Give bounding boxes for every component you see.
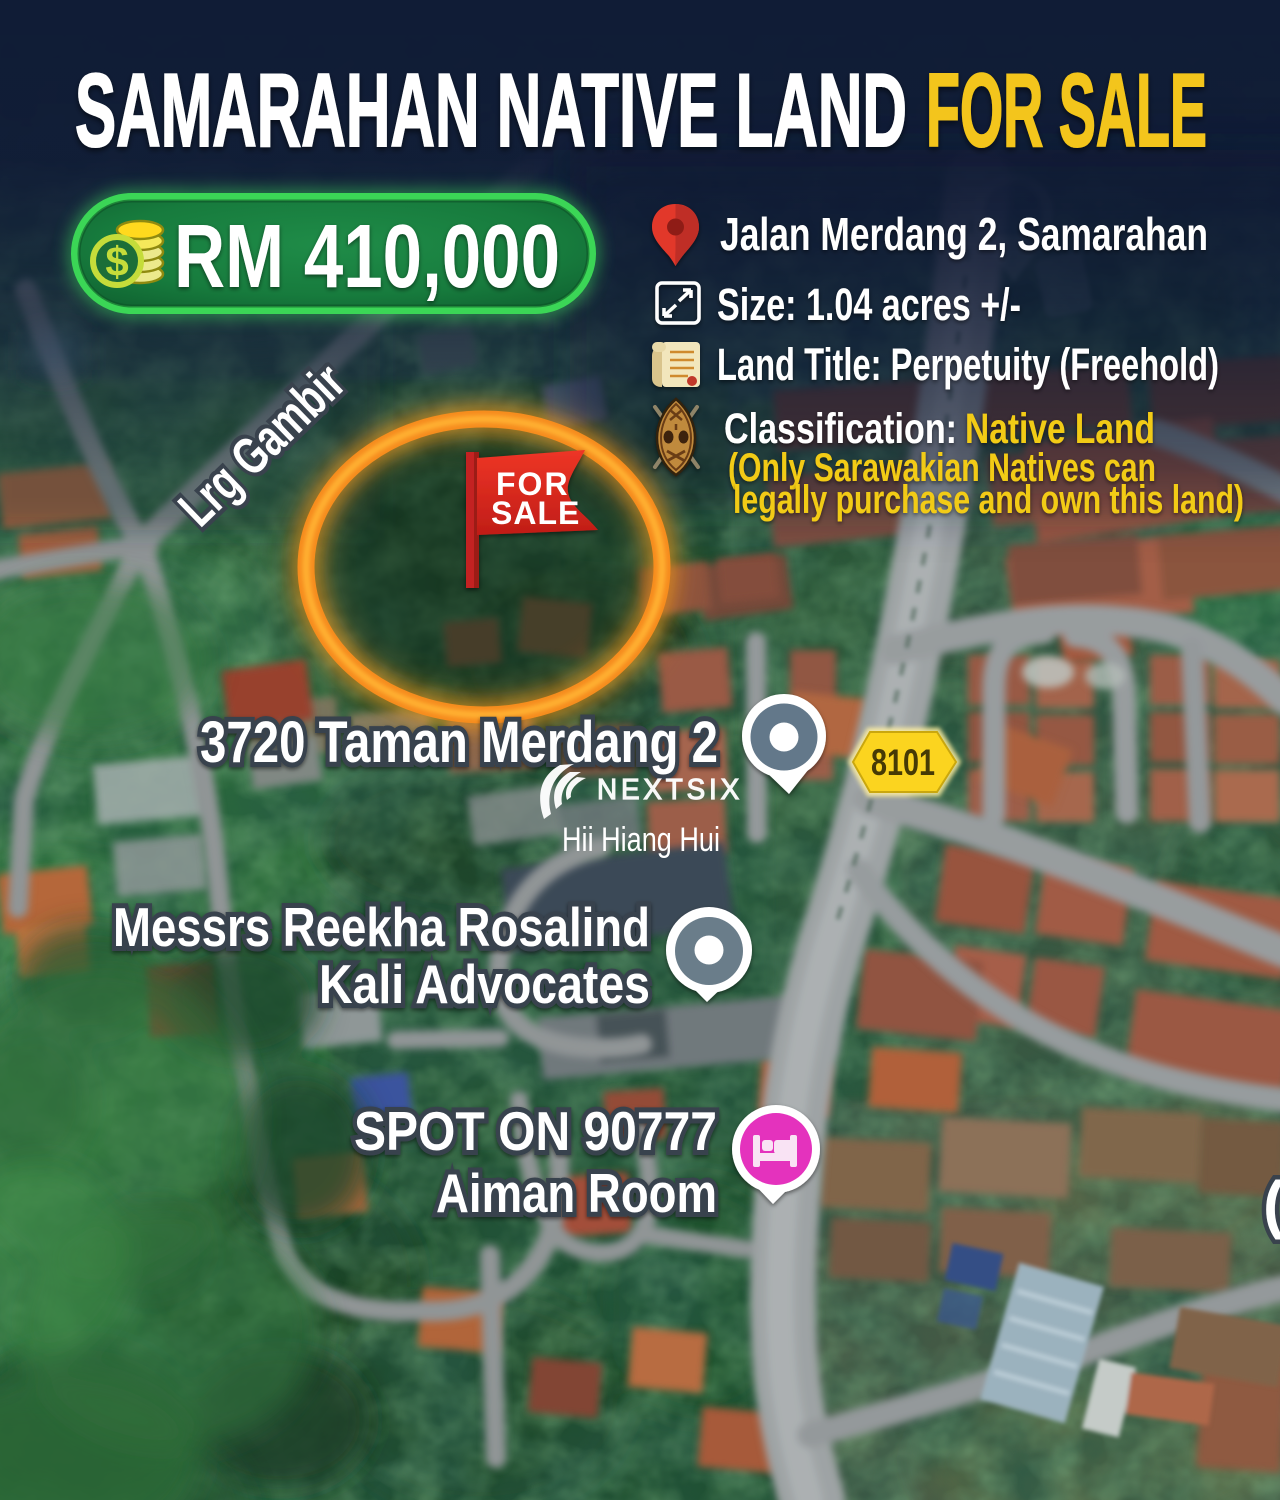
svg-text:Size: 1.04 acres +/-: Size: 1.04 acres +/- (717, 279, 1021, 330)
svg-text:FOR SALE: FOR SALE (926, 53, 1207, 169)
svg-text:Land Title: Perpetuity (Freeho: Land Title: Perpetuity (Freehold) (717, 339, 1219, 390)
svg-text:Kali Advocates: Kali Advocates (319, 953, 650, 1015)
svg-text:Jalan Merdang 2, Samarahan: Jalan Merdang 2, Samarahan (720, 208, 1208, 260)
svg-text:(: ( (1263, 1168, 1280, 1240)
svg-text:RM 410,000: RM 410,000 (174, 207, 560, 307)
svg-text:SAMARAHAN NATIVE LAND: SAMARAHAN NATIVE LAND (75, 53, 907, 169)
svg-text:Messrs Reekha Rosalind: Messrs Reekha Rosalind (113, 896, 650, 958)
svg-text:SPOT ON 90777: SPOT ON 90777 (354, 1100, 717, 1162)
svg-text:$: $ (105, 238, 128, 285)
svg-text:8101: 8101 (871, 742, 935, 783)
svg-text:NEXTSIX: NEXTSIX (597, 774, 743, 806)
svg-text:Hii Hiang Hui: Hii Hiang Hui (562, 821, 720, 859)
svg-text:legally purchase and own this: legally purchase and own this land) (733, 478, 1244, 522)
svg-text:SALE: SALE (491, 495, 580, 531)
svg-text:3720 Taman Merdang 2: 3720 Taman Merdang 2 (200, 710, 718, 775)
svg-text:Aiman Room: Aiman Room (436, 1162, 717, 1224)
